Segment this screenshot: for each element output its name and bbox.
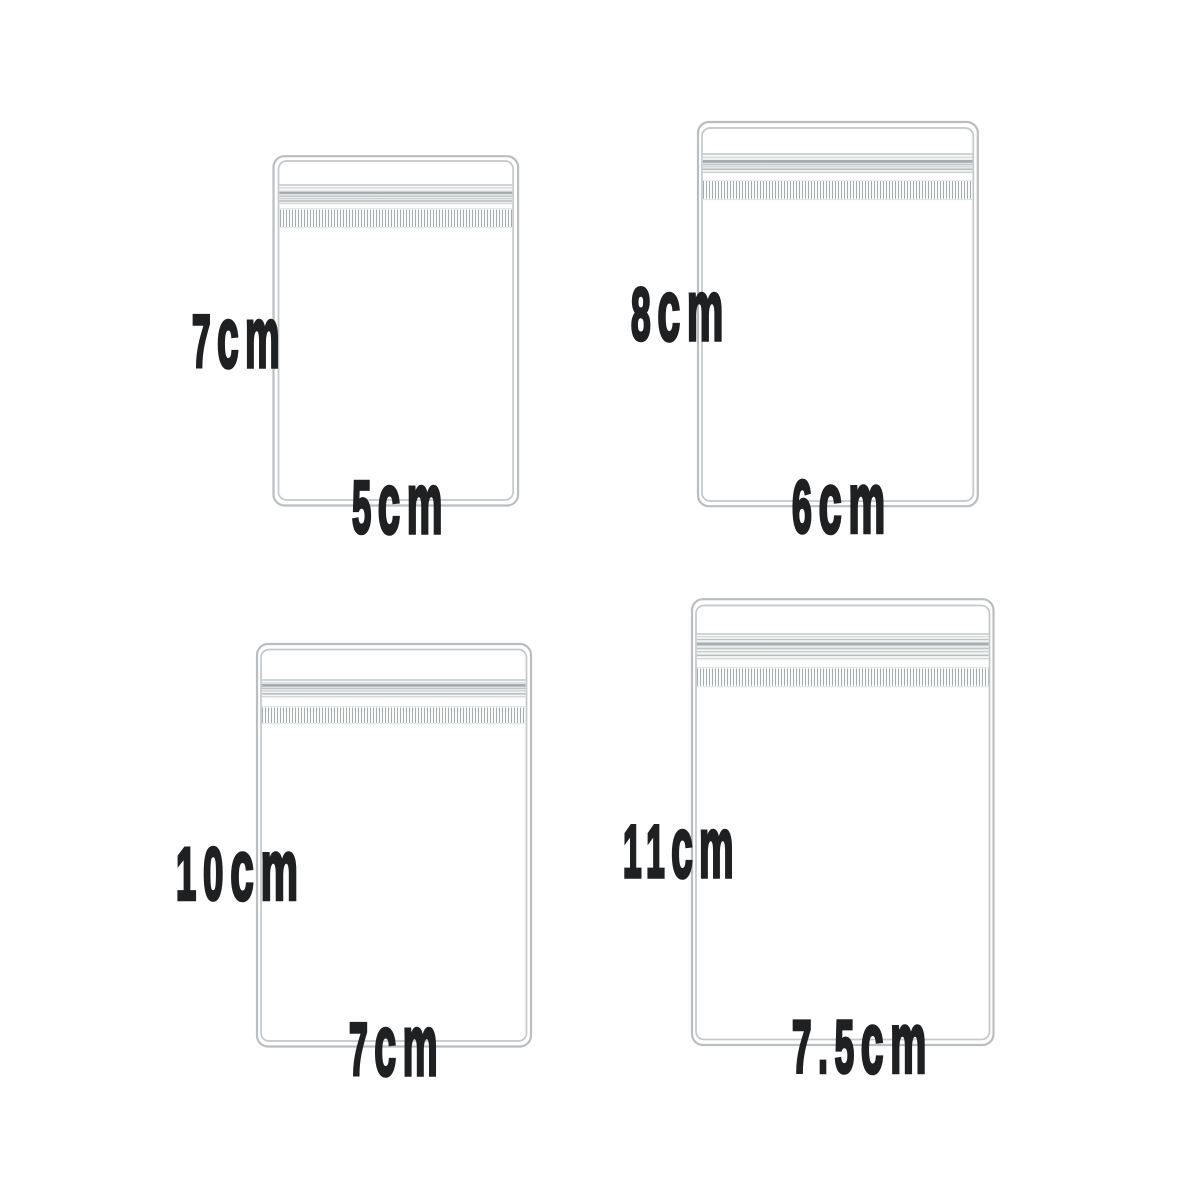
svg-text:7cm: 7cm: [192, 290, 286, 386]
svg-text:10cm: 10cm: [176, 823, 305, 919]
svg-text:8cm: 8cm: [631, 263, 730, 359]
svg-text:5cm: 5cm: [352, 456, 449, 552]
svg-text:7.5cm: 7.5cm: [792, 996, 933, 1092]
svg-text:7cm: 7cm: [349, 998, 444, 1094]
svg-text:11cm: 11cm: [623, 800, 740, 896]
svg-text:6cm: 6cm: [792, 456, 892, 552]
